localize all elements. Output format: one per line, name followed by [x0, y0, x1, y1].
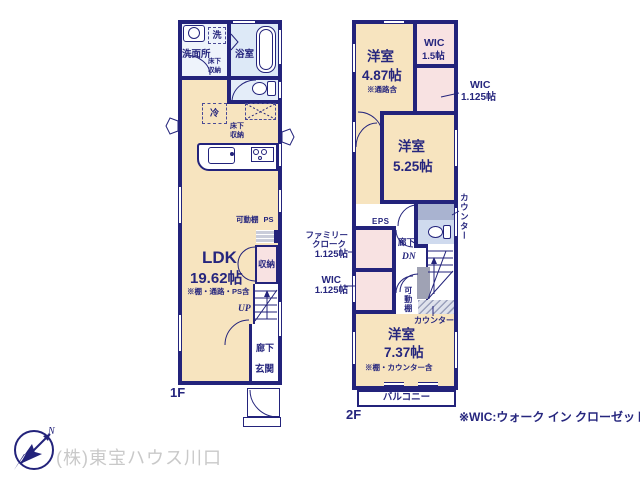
compass-needle-wing	[20, 450, 42, 464]
linework-2f	[356, 24, 454, 386]
door-arc-wic-c	[396, 276, 413, 293]
window	[278, 302, 282, 336]
wic-b-labels: WIC 1.125帖	[461, 80, 496, 103]
wic-c-labels: WIC 1.125帖	[302, 275, 348, 296]
balcony-label: バルコニー	[383, 393, 430, 403]
entrance-porch	[247, 388, 280, 417]
company-name: (株)東宝ハウス川口	[56, 444, 222, 470]
window	[454, 208, 458, 236]
compass-n-label: N	[47, 426, 56, 437]
door-flag-left	[166, 118, 178, 134]
wic-b-size: 1.125帖	[461, 92, 496, 103]
door-arc-family-cloak	[396, 230, 413, 247]
door-fold-bath	[231, 34, 238, 50]
window	[278, 144, 282, 166]
window	[278, 190, 282, 212]
floor1-label: 1F	[170, 386, 185, 400]
floorplan-1f: 洗 洗面所 床下収納 浴室 冷 床下収納 可動棚 PS 収納 UP 廊下 玄関 …	[178, 20, 282, 385]
wic-c-size: 1.125帖	[302, 286, 348, 296]
door-arc-ldk	[225, 320, 249, 345]
entrance-step	[243, 417, 281, 427]
door-flag-right	[282, 129, 294, 145]
door-arc-closet	[238, 247, 255, 264]
door-arc-room2	[356, 123, 377, 147]
balcony: バルコニー	[357, 390, 456, 407]
window	[278, 30, 282, 64]
counter-side-label: カウンター	[459, 193, 468, 241]
door-arc-toilet2	[398, 205, 417, 226]
door-arc-room3	[400, 274, 418, 292]
door-arc-washroom	[185, 55, 210, 75]
window	[278, 82, 282, 98]
wic-footnote: ※WIC:ウォーク イン クローゼット	[459, 411, 640, 424]
window	[454, 332, 458, 368]
door-arc-toilet	[232, 80, 256, 102]
underfloor-x	[246, 104, 275, 119]
family-cloak-labels: ファミリー クローク 1.125帖	[302, 231, 348, 260]
window	[454, 130, 458, 166]
compass: N	[8, 424, 60, 476]
door-arc-closet	[238, 264, 255, 281]
floor2-label: 2F	[346, 408, 361, 422]
stairs-treads	[428, 251, 453, 272]
floorplan-2f: EPS 廊下 DN 可動棚 カウンター 洋室 7.37帖 ※棚・カウンター含 洋…	[352, 20, 458, 390]
family-cloak-size: 1.125帖	[302, 250, 348, 260]
floorplan-page: { "colors": { "wall": "#23237b", "text":…	[0, 0, 640, 480]
linework-1f	[182, 24, 278, 381]
wic-b-name: WIC	[461, 80, 496, 92]
